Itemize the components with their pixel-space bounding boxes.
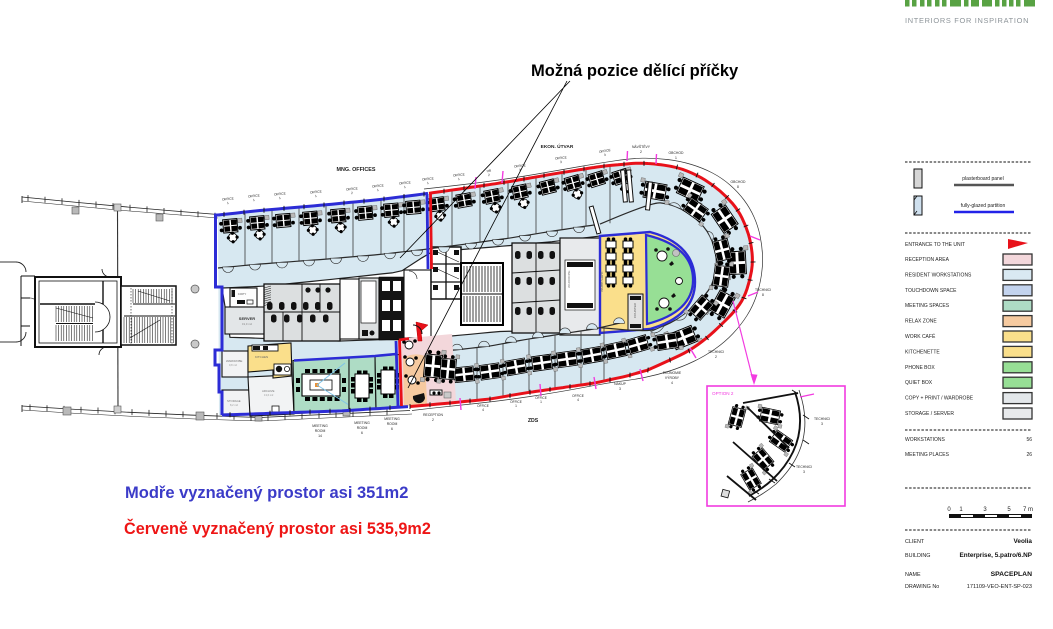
svg-text:WORK CAFÉ: WORK CAFÉ xyxy=(905,333,936,340)
svg-text:4: 4 xyxy=(577,398,579,402)
svg-text:ROOM: ROOM xyxy=(357,426,368,430)
svg-text:TECHNICI: TECHNICI xyxy=(814,417,830,421)
svg-text:RELAX ZONE: RELAX ZONE xyxy=(905,319,937,325)
svg-text:3: 3 xyxy=(803,470,805,474)
svg-text:BUILDING: BUILDING xyxy=(905,553,930,559)
svg-text:CLIENT: CLIENT xyxy=(905,539,925,545)
svg-text:8,2 m2: 8,2 m2 xyxy=(230,403,238,407)
svg-text:19,9 m2: 19,9 m2 xyxy=(242,322,253,326)
svg-text:13,6 m2: 13,6 m2 xyxy=(264,393,274,397)
svg-text:VÝROBY: VÝROBY xyxy=(665,376,680,380)
svg-text:Modře vyznačený prostor asi 35: Modře vyznačený prostor asi 351m2 xyxy=(125,484,408,502)
svg-text:1: 1 xyxy=(515,404,517,408)
svg-text:INTERIORS FOR INSPIRATION: INTERIORS FOR INSPIRATION xyxy=(905,16,1029,25)
svg-text:ENTRANCE TO THE UNIT: ENTRANCE TO THE UNIT xyxy=(905,242,965,248)
svg-text:WORK CAFE: WORK CAFE xyxy=(600,271,604,292)
svg-text:COPY + PRINT / WARDROBE: COPY + PRINT / WARDROBE xyxy=(905,396,974,402)
svg-text:NAME: NAME xyxy=(905,572,921,578)
svg-text:WARDROBE: WARDROBE xyxy=(226,359,243,363)
svg-text:Veolia: Veolia xyxy=(1014,538,1033,545)
svg-text:3: 3 xyxy=(619,387,621,391)
svg-text:26: 26 xyxy=(1026,452,1032,458)
svg-text:OBCHOD: OBCHOD xyxy=(731,180,746,184)
svg-text:MEETING PLACES: MEETING PLACES xyxy=(905,452,950,458)
svg-text:STORAGE: STORAGE xyxy=(227,399,241,403)
svg-text:EKON. ÚTVAR: EKON. ÚTVAR xyxy=(541,143,574,150)
svg-text:56: 56 xyxy=(1026,437,1032,443)
svg-text:KITCHEN: KITCHEN xyxy=(255,355,268,359)
svg-text:ROOM: ROOM xyxy=(315,429,326,433)
svg-text:OPTION 2: OPTION 2 xyxy=(712,391,734,396)
svg-text:ARCHIVE: ARCHIVE xyxy=(262,389,275,393)
svg-text:2: 2 xyxy=(640,150,642,154)
svg-text:14: 14 xyxy=(318,434,322,438)
svg-text:SERVER: SERVER xyxy=(239,316,255,321)
svg-text:1: 1 xyxy=(675,156,677,160)
svg-text:2: 2 xyxy=(432,418,434,422)
svg-text:8: 8 xyxy=(762,293,764,297)
svg-text:OBCHOD: OBCHOD xyxy=(669,151,684,155)
svg-text:COUNTER: COUNTER xyxy=(633,302,637,318)
svg-text:6: 6 xyxy=(391,427,393,431)
svg-text:MEETING: MEETING xyxy=(312,424,328,428)
svg-text:7 m: 7 m xyxy=(1023,507,1033,513)
svg-text:MEETING SPACES: MEETING SPACES xyxy=(905,303,950,309)
svg-text:6: 6 xyxy=(361,431,363,435)
svg-text:ROOM: ROOM xyxy=(387,422,398,426)
svg-text:TECHNICI: TECHNICI xyxy=(755,288,771,292)
svg-text:COPY: COPY xyxy=(238,292,247,296)
svg-text:MEETING: MEETING xyxy=(354,421,370,425)
svg-text:4: 4 xyxy=(482,408,484,412)
svg-text:TOUCHDOWN SPACE: TOUCHDOWN SPACE xyxy=(905,288,957,294)
svg-text:1: 1 xyxy=(540,400,542,404)
svg-text:2: 2 xyxy=(715,355,717,359)
svg-text:TECHNICI: TECHNICI xyxy=(796,465,812,469)
svg-text:NÁKUP: NÁKUP xyxy=(614,382,626,386)
svg-text:RECEPTION: RECEPTION xyxy=(423,413,443,417)
svg-text:STORAGE / SERVER: STORAGE / SERVER xyxy=(905,411,954,417)
svg-text:KITCHENETTE: KITCHENETTE xyxy=(905,349,940,355)
svg-text:Enterprise, 5.patro/6.NP: Enterprise, 5.patro/6.NP xyxy=(960,552,1033,559)
svg-text:WORKSTATIONS: WORKSTATIONS xyxy=(905,437,945,443)
svg-text:PHONE BOX: PHONE BOX xyxy=(905,365,935,371)
svg-text:DRAWING No: DRAWING No xyxy=(905,584,939,590)
svg-text:9,8 m2: 9,8 m2 xyxy=(229,363,237,367)
svg-text:Možná pozice dělící příčky: Možná pozice dělící příčky xyxy=(531,62,739,80)
svg-text:Červeně vyznačený prostor asi: Červeně vyznačený prostor asi 535,9m2 xyxy=(124,519,431,538)
svg-text:NÁVŠTĚVY: NÁVŠTĚVY xyxy=(632,144,651,149)
svg-text:MNG. OFFICES: MNG. OFFICES xyxy=(337,167,376,173)
svg-text:171109-VEO-ENT-SP-023: 171109-VEO-ENT-SP-023 xyxy=(967,584,1032,590)
svg-text:RESIDENT WORKSTATIONS: RESIDENT WORKSTATIONS xyxy=(905,272,972,278)
svg-text:8: 8 xyxy=(737,185,739,189)
svg-text:ZDS: ZDS xyxy=(528,418,539,424)
svg-text:plasterboard panel: plasterboard panel xyxy=(962,176,1003,182)
svg-text:QUIET BOX: QUIET BOX xyxy=(905,380,933,386)
svg-text:SPACEPLAN: SPACEPLAN xyxy=(991,571,1033,578)
svg-text:MEETING: MEETING xyxy=(384,417,400,421)
svg-text:4: 4 xyxy=(671,381,673,385)
svg-text:WARDROBE: WARDROBE xyxy=(567,270,571,288)
svg-text:fully-glazed partition: fully-glazed partition xyxy=(961,203,1006,209)
svg-text:3: 3 xyxy=(821,422,823,426)
svg-text:RECEPTION AREA: RECEPTION AREA xyxy=(905,257,950,263)
svg-text:TECHNICI: TECHNICI xyxy=(708,350,724,354)
svg-text:EKONOMIE: EKONOMIE xyxy=(663,371,682,375)
